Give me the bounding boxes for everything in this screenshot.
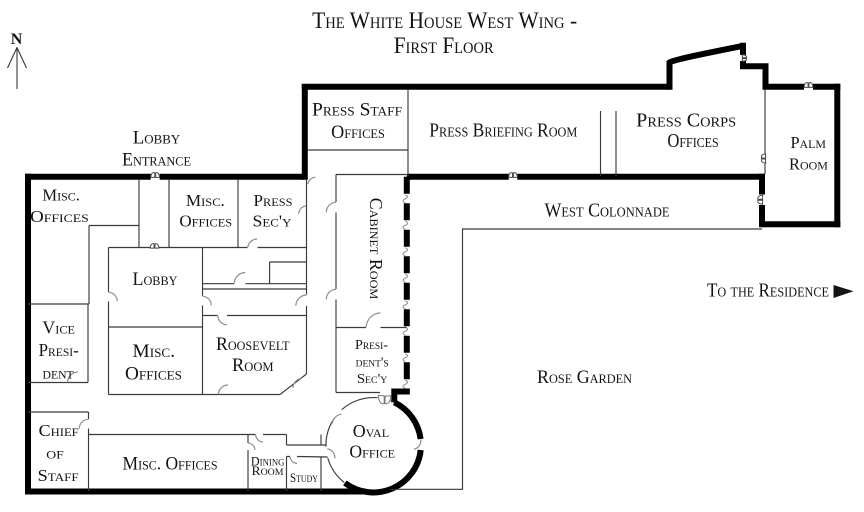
- svg-text:dent: dent: [43, 363, 75, 383]
- svg-text:Vice: Vice: [42, 318, 75, 338]
- svg-text:Study: Study: [290, 471, 318, 485]
- svg-text:Oval: Oval: [353, 421, 390, 441]
- svg-text:Press Briefing Room: Press Briefing Room: [429, 119, 577, 141]
- svg-text:To the Residence: To the Residence: [707, 281, 829, 302]
- svg-text:Roosevelt: Roosevelt: [216, 334, 290, 355]
- svg-text:Lobby: Lobby: [133, 269, 179, 290]
- svg-text:West Colonnade: West Colonnade: [545, 200, 670, 222]
- svg-text:Offices: Offices: [125, 364, 182, 385]
- svg-text:Press Staff: Press Staff: [312, 100, 402, 121]
- svg-text:Office: Office: [349, 442, 395, 462]
- svg-text:Press Corps: Press Corps: [636, 111, 736, 132]
- svg-text:Room: Room: [252, 464, 284, 478]
- svg-text:Entrance: Entrance: [122, 150, 191, 171]
- svg-text:Room: Room: [789, 155, 828, 174]
- svg-text:Presi-: Presi-: [355, 337, 389, 352]
- svg-text:Room: Room: [232, 355, 274, 376]
- svg-text:Lobby: Lobby: [133, 128, 181, 149]
- svg-text:Offices: Offices: [331, 122, 385, 143]
- svg-text:The White House West Wing -: The White House West Wing -: [312, 8, 577, 34]
- svg-text:Misc. Offices: Misc. Offices: [123, 454, 218, 475]
- svg-text:Chief: Chief: [39, 421, 79, 440]
- svg-text:dent's: dent's: [356, 355, 389, 370]
- svg-text:Offices: Offices: [179, 212, 232, 231]
- svg-text:Offices: Offices: [30, 207, 89, 226]
- svg-text:of: of: [46, 444, 64, 463]
- svg-text:Presi-: Presi-: [39, 340, 79, 360]
- svg-text:Offices: Offices: [667, 131, 718, 152]
- svg-text:Misc.: Misc.: [42, 186, 80, 205]
- svg-text:N: N: [11, 31, 23, 48]
- svg-text:Sec'y: Sec'y: [357, 371, 388, 386]
- svg-text:Palm: Palm: [790, 133, 826, 152]
- svg-text:Staff: Staff: [38, 466, 80, 485]
- svg-text:Misc.: Misc.: [186, 191, 225, 210]
- svg-text:First Floor: First Floor: [394, 33, 494, 59]
- svg-text:Cabinet Room: Cabinet Room: [366, 198, 386, 300]
- svg-text:Rose Garden: Rose Garden: [537, 367, 633, 388]
- svg-text:Sec'y: Sec'y: [253, 212, 292, 231]
- svg-text:Misc.: Misc.: [133, 341, 176, 362]
- svg-text:Press: Press: [254, 191, 293, 210]
